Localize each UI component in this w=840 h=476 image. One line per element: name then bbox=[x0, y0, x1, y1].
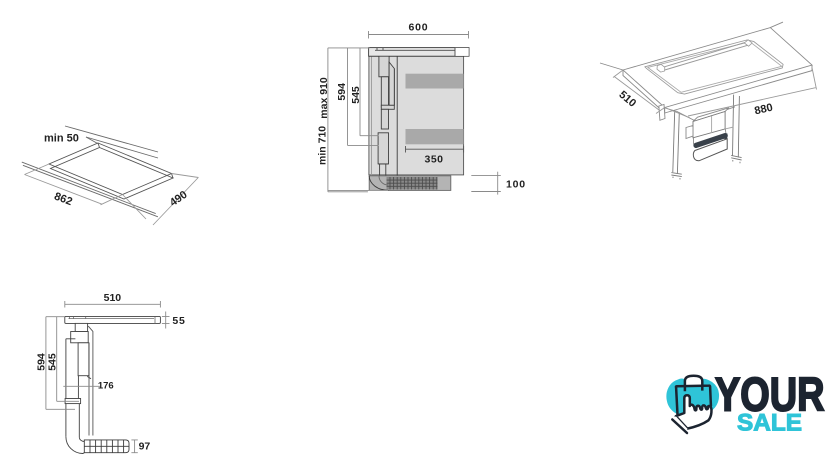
svg-text:600: 600 bbox=[409, 22, 429, 34]
svg-text:545: 545 bbox=[350, 86, 362, 104]
svg-text:max 910: max 910 bbox=[318, 77, 330, 119]
svg-text:594: 594 bbox=[336, 83, 348, 101]
svg-text:min 710: min 710 bbox=[316, 126, 328, 165]
svg-text:SALE: SALE bbox=[737, 410, 802, 437]
svg-text:176: 176 bbox=[98, 381, 114, 392]
svg-text:880: 880 bbox=[753, 102, 774, 118]
svg-text:55: 55 bbox=[172, 315, 185, 327]
svg-text:510: 510 bbox=[104, 292, 122, 304]
svg-text:97: 97 bbox=[139, 441, 151, 453]
svg-text:545: 545 bbox=[47, 353, 59, 371]
svg-text:862: 862 bbox=[52, 190, 73, 208]
svg-text:min 50: min 50 bbox=[44, 133, 79, 145]
svg-text:350: 350 bbox=[424, 154, 443, 166]
svg-text:100: 100 bbox=[506, 178, 526, 190]
